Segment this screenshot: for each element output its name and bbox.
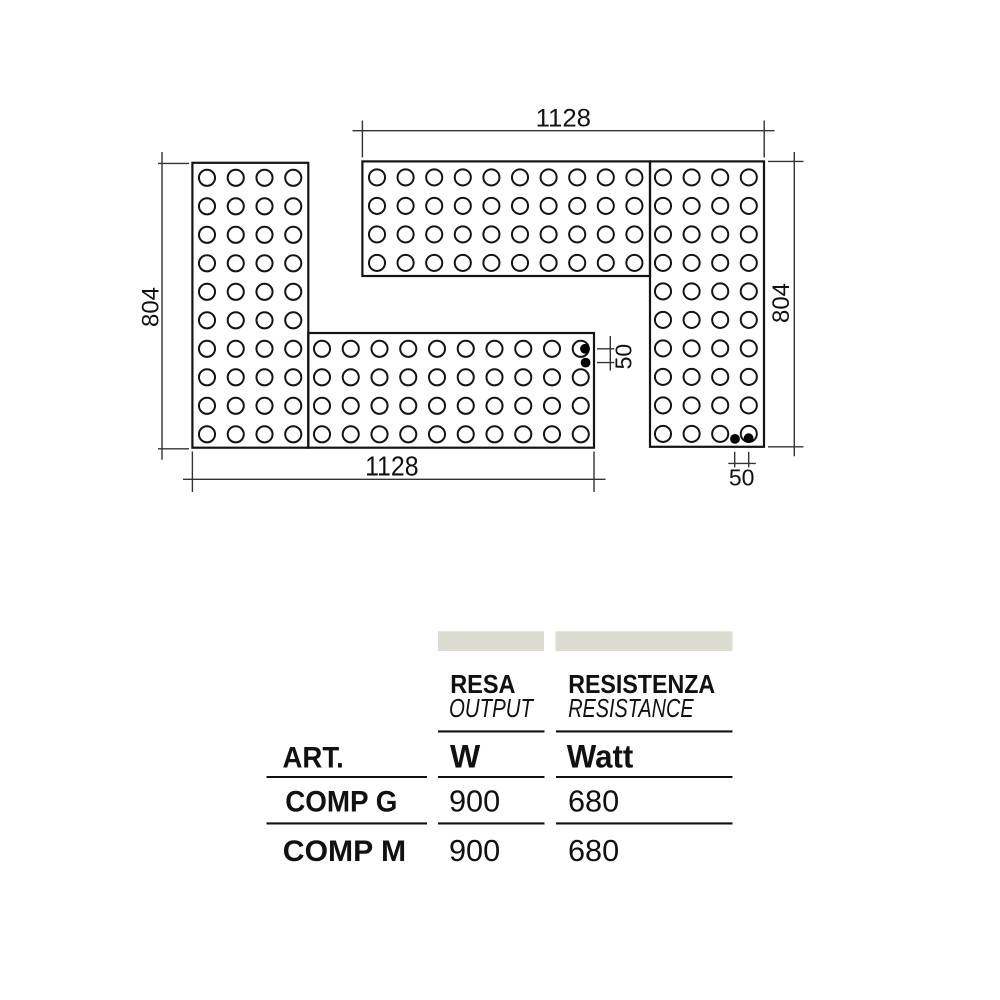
svg-text:900: 900 — [449, 833, 500, 868]
svg-text:1128: 1128 — [536, 105, 591, 133]
svg-text:680: 680 — [568, 783, 619, 818]
svg-text:ART.: ART. — [283, 741, 344, 774]
svg-text:COMP M: COMP M — [283, 835, 406, 868]
svg-text:50: 50 — [729, 465, 755, 491]
svg-text:COMP G: COMP G — [285, 786, 397, 819]
svg-text:W: W — [450, 739, 481, 775]
svg-text:900: 900 — [449, 783, 500, 818]
svg-text:50: 50 — [611, 344, 637, 370]
svg-text:680: 680 — [568, 833, 619, 868]
svg-text:804: 804 — [137, 287, 164, 327]
svg-text:Watt: Watt — [567, 738, 634, 774]
svg-text:OUTPUT: OUTPUT — [449, 694, 534, 723]
svg-text:RESISTANCE: RESISTANCE — [568, 693, 694, 722]
svg-text:804: 804 — [768, 283, 795, 323]
svg-text:1128: 1128 — [365, 450, 418, 482]
